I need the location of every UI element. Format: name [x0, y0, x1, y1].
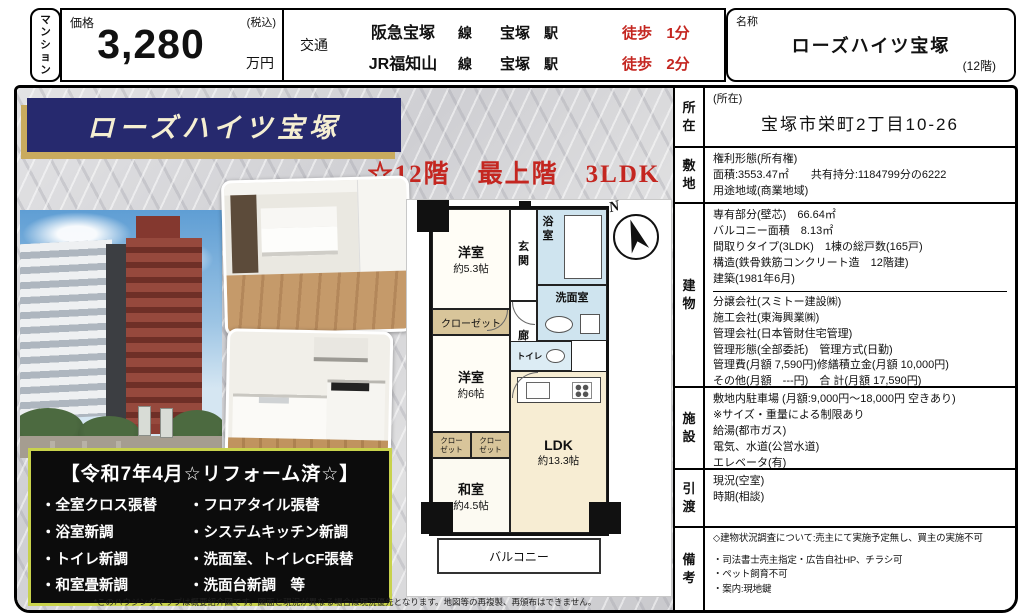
compass-needle	[612, 213, 660, 261]
title-banner-text: ローズハイツ宝塚	[87, 106, 341, 145]
room-toilet: トイレ	[510, 341, 572, 371]
toilet-icon	[546, 349, 565, 363]
route-walk-minutes: 1分	[652, 22, 704, 43]
detail-line: 構造(鉄骨鉄筋コンクリート造 12階建)	[713, 256, 1007, 272]
body-frame: ローズハイツ宝塚 ☆12階 最上階 3LDK	[14, 85, 1018, 613]
pillar	[417, 200, 449, 232]
room-size: 約5.3帖	[453, 261, 489, 276]
access-route-2: JR福知山 線 宝塚 駅 徒歩 2分	[348, 50, 704, 74]
detail-line: 電気、水道(公営水道)	[713, 440, 1007, 456]
real-estate-flyer: マンション 価格 (税込) 3,280 万円 交通 阪急宝塚 線 宝塚 駅 徒歩…	[0, 0, 1024, 614]
detail-line: 間取りタイプ(3LDK) 1棟の総戸数(165戸)	[713, 240, 1007, 256]
detail-row-building: 建物 専有部分(壁芯) 66.64㎡ バルコニー面積 8.13㎡ 間取りタイプ(…	[675, 204, 1015, 388]
property-floor-note: (12階)	[963, 57, 996, 74]
room-name: トイレ	[517, 350, 543, 362]
wall	[357, 178, 409, 277]
room-bath: 浴室	[537, 209, 607, 285]
building-white	[20, 239, 112, 420]
room-name: LDK	[544, 437, 573, 453]
reform-item: ・洗面室、トイレCF張替	[189, 547, 379, 574]
route-station-suffix: 駅	[544, 54, 596, 74]
price-tax-note: (税込)	[247, 14, 276, 30]
room-size: 約13.3帖	[538, 453, 579, 468]
details-panel: 所在 (所在) 宝塚市栄町2丁目10-26 敷地 権利形態(所有権) 面積:35…	[673, 88, 1015, 610]
room-name: バルコニー	[489, 548, 549, 565]
building-management-block: 分譲会社(スミトー建設㈱) 施工会社(東海興業㈱) 管理会社(日本管財住宅管理)…	[713, 291, 1007, 386]
building-red-tower	[126, 238, 202, 428]
detail-line: 管理費(月額 7,590円)修繕積立金(月額 10,000円)	[713, 358, 1007, 374]
row-label: 所在	[682, 99, 697, 134]
row-label: 引渡	[682, 480, 697, 515]
route-walk-label: 徒歩	[596, 53, 652, 74]
route-walk-minutes: 2分	[652, 53, 704, 74]
detail-line: ・司法書士売主指定・広告自社HP、チラシ可	[713, 554, 1007, 569]
access-route-1: 阪急宝塚 線 宝塚 駅 徒歩 1分	[348, 19, 704, 43]
kitchen-counter	[261, 226, 338, 256]
room-name: 洋室	[458, 242, 484, 261]
compass-north-label: N	[607, 198, 622, 217]
room-name: クローゼット	[439, 436, 465, 454]
reform-box: 【令和7年4月☆リフォーム済☆】 ・全室クロス張替 ・浴室新調 ・トイレ新調 ・…	[28, 448, 392, 606]
detail-line: 管理形態(全部委託) 管理方式(日勤)	[713, 343, 1007, 359]
detail-row-land: 敷地 権利形態(所有権) 面積:3553.47㎡ 共有持分:1184799分の6…	[675, 148, 1015, 204]
detail-line: 給湯(都市ガス)	[713, 424, 1007, 440]
reform-item: ・浴室新調	[41, 520, 189, 547]
room-entrance: 玄関	[510, 209, 537, 301]
room-bedroom2: 洋室 約6帖	[432, 335, 510, 432]
detail-line: エレベータ(有)	[713, 456, 1007, 468]
stove-top	[331, 382, 369, 391]
access-label: 交通	[300, 35, 328, 55]
spacer	[713, 547, 1007, 554]
room-name: 和室	[458, 479, 484, 498]
detail-line: ※サイズ・重量による制限あり	[713, 408, 1007, 424]
range-hood	[314, 337, 368, 362]
detail-line: 敷地内駐車場 (月額:9,000円〜18,000円 空きあり)	[713, 392, 1007, 408]
row-label: 備考	[682, 551, 697, 586]
compass-icon: N	[613, 214, 659, 260]
reform-item: ・フロアタイル張替	[189, 493, 379, 520]
reform-title: 【令和7年4月☆リフォーム済☆】	[41, 459, 379, 486]
detail-row-handover: 引渡 現況(空室) 時期(相談)	[675, 470, 1015, 528]
reform-items-right: ・フロアタイル張替 ・システムキッチン新調 ・洗面室、トイレCF張替 ・洗面台新…	[189, 493, 379, 600]
detail-line: ・案内:現地鍵	[713, 583, 1007, 598]
detail-line: 施工会社(東海興業㈱)	[713, 311, 1007, 327]
price-amount: 3,280	[68, 21, 234, 68]
room-washroom: 洗面室	[537, 285, 607, 341]
entrance-door-mark	[519, 201, 531, 209]
pillar	[421, 502, 453, 534]
reform-item: ・トイレ新調	[41, 547, 189, 574]
reform-item: ・システムキッチン新調	[189, 520, 379, 547]
row-label: 建物	[682, 277, 697, 312]
room-name: 洗面室	[556, 289, 589, 305]
property-name-box: 名称 ローズハイツ宝塚 (12階)	[726, 8, 1016, 82]
sink	[259, 397, 289, 404]
access-section: 交通 阪急宝塚 線 宝塚 駅 徒歩 1分 JR福知山 線 宝塚 駅 徒歩 2分	[284, 10, 724, 80]
room-name: 洋室	[458, 367, 484, 386]
floor-plan: 洋室 約5.3帖 クローゼット 洋室 約6帖 クローゼット クローゼット 和室	[407, 200, 671, 596]
property-name: ローズハイツ宝塚	[728, 32, 1014, 58]
detail-row-facilities: 施設 敷地内駐車場 (月額:9,000円〜18,000円 空きあり) ※サイズ・…	[675, 388, 1015, 470]
detail-row-remarks: 備考 ◇建物状況調査について:売主にて実施予定無し、買主の実施不可 ・司法書士売…	[675, 528, 1015, 610]
room-closet-small: クローゼット	[432, 432, 471, 458]
detail-line: 分譲会社(スミトー建設㈱)	[713, 295, 1007, 311]
room-name: 浴室	[542, 216, 554, 244]
room-size: 約6帖	[458, 386, 485, 401]
route-line: 阪急宝塚	[348, 19, 458, 43]
detail-line: 時期(相談)	[713, 490, 1007, 506]
disclaimer-note: *このハウジングマップは概要紹介図です。図面と現況が異なる場合は現況優先となりま…	[17, 596, 673, 608]
room-size: 約4.5帖	[453, 498, 489, 513]
living-room-photo	[221, 175, 413, 336]
title-banner: ローズハイツ宝塚	[27, 98, 401, 152]
washer-icon	[580, 314, 600, 334]
reform-item: ・全室クロス張替	[41, 493, 189, 520]
detail-line: ◇建物状況調査について:売主にて実施予定無し、買主の実施不可	[713, 532, 1007, 547]
price-box: 価格 (税込) 3,280 万円	[62, 10, 284, 80]
detail-line: 権利形態(所有権)	[713, 152, 1007, 168]
detail-line: その他(月額 ---円) 合 計(月額 17,590円)	[713, 374, 1007, 386]
route-station-suffix: 駅	[544, 23, 596, 43]
room-closet-small: クローゼット	[471, 432, 510, 458]
balcony: バルコニー	[437, 538, 601, 574]
detail-line: バルコニー面積 8.13㎡	[713, 224, 1007, 240]
address: 宝塚市栄町2丁目10-26	[713, 113, 1007, 138]
detail-line: 面積:3553.47㎡ 共有持分:1184799分の6222	[713, 168, 1007, 184]
reform-items: ・全室クロス張替 ・浴室新調 ・トイレ新調 ・和室畳新調 ・フロアタイル張替 ・…	[41, 493, 379, 600]
detail-line: 建築(1981年6月)	[713, 272, 1007, 288]
route-station: 宝塚	[486, 53, 544, 74]
property-type-label: マンション	[39, 14, 52, 76]
sink-icon	[545, 316, 573, 333]
exterior-photo	[20, 210, 222, 458]
detail-line: ・ペット飼育不可	[713, 568, 1007, 583]
route-line: JR福知山	[348, 50, 458, 74]
wood-floor	[227, 270, 411, 333]
bathtub-icon	[564, 215, 602, 279]
header-main-box: 価格 (税込) 3,280 万円 交通 阪急宝塚 線 宝塚 駅 徒歩 1分 JR…	[60, 8, 726, 82]
detail-line: 専有部分(壁芯) 66.64㎡	[713, 208, 1007, 224]
detail-line: 管理会社(日本管財住宅管理)	[713, 327, 1007, 343]
route-station: 宝塚	[486, 22, 544, 43]
pillar	[589, 502, 621, 534]
stove-icon	[572, 382, 592, 399]
route-line-suffix: 線	[458, 23, 486, 43]
detail-line: 現況(空室)	[713, 474, 1007, 490]
reform-items-left: ・全室クロス張替 ・浴室新調 ・トイレ新調 ・和室畳新調	[41, 493, 189, 600]
row-label: 施設	[682, 410, 697, 445]
location-caption: (所在)	[713, 92, 1007, 108]
price-unit: 万円	[246, 53, 274, 73]
property-type-box: マンション	[30, 8, 61, 82]
name-label: 名称	[736, 13, 758, 29]
left-panel: ローズハイツ宝塚 ☆12階 最上階 3LDK	[17, 88, 673, 610]
signboard	[138, 406, 151, 436]
detail-row-location: 所在 (所在) 宝塚市栄町2丁目10-26	[675, 88, 1015, 148]
route-line-suffix: 線	[458, 54, 486, 74]
room-name: クローゼット	[478, 436, 504, 454]
route-walk-label: 徒歩	[596, 22, 652, 43]
row-label: 敷地	[682, 157, 697, 192]
kitchen-photo	[225, 328, 394, 463]
door	[230, 195, 258, 274]
detail-line: 用途地域(商業地域)	[713, 184, 1007, 200]
signboard	[160, 408, 173, 438]
room-name: 玄関	[518, 241, 530, 269]
